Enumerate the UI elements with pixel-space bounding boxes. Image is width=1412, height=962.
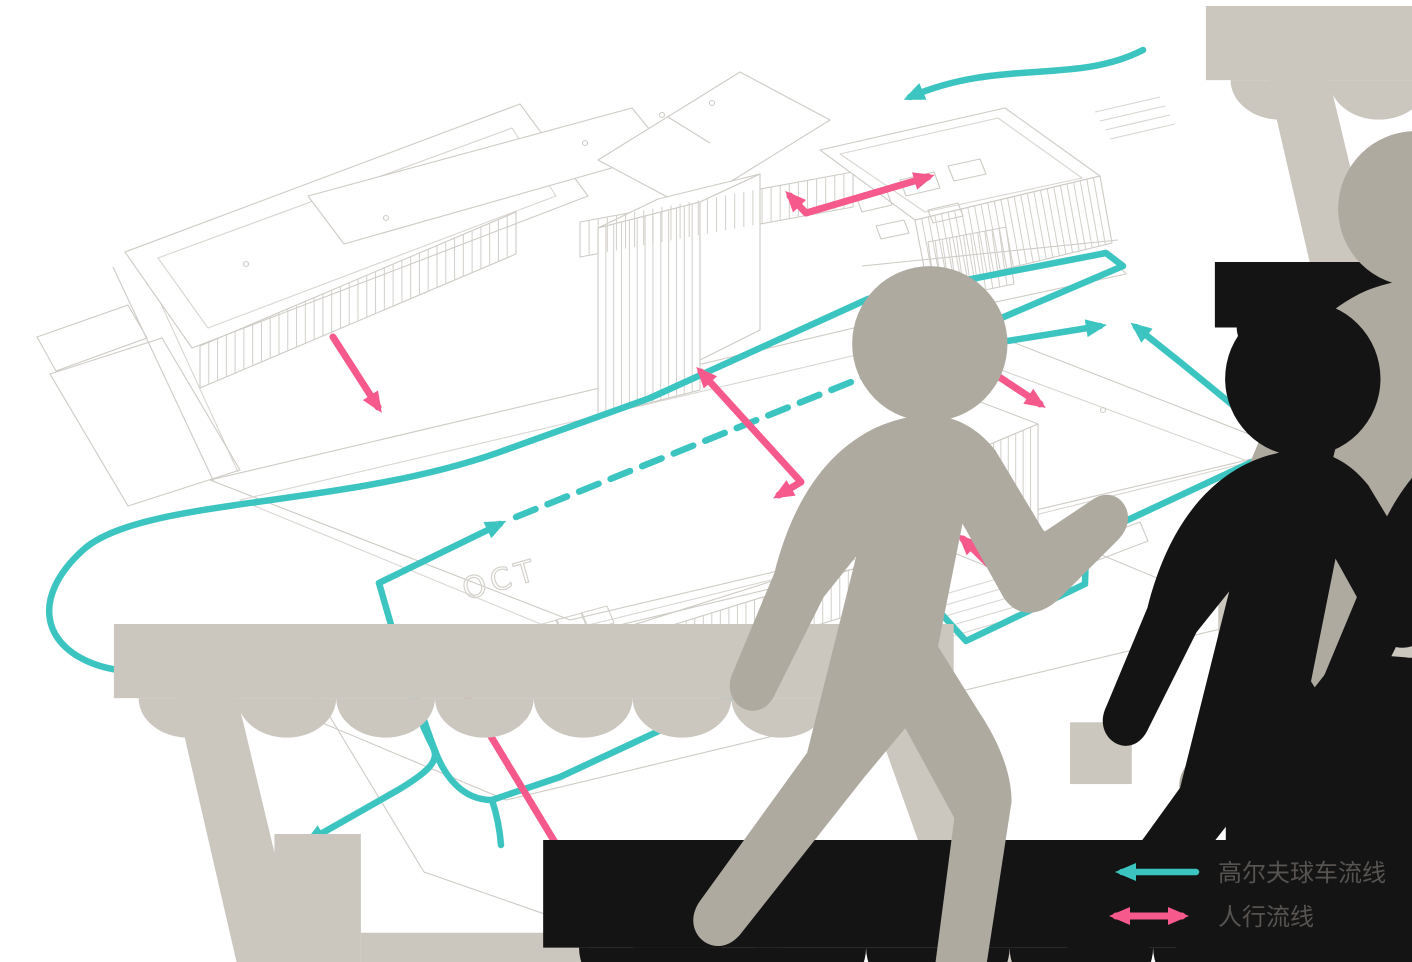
left-slab-1: [37, 305, 147, 371]
tower-center-side: [700, 174, 760, 360]
ground-logo-text: OCT: [459, 553, 544, 608]
ped-left-balcony-down: [333, 337, 378, 407]
circulation-diagram: OCT 高尔夫球车流线 人行流线: [0, 0, 1412, 962]
legend-golf-cart-label: 高尔夫球车流线: [1218, 859, 1386, 887]
cart-arrival-from-top-cart: [910, 50, 1143, 97]
deck-upper-inner: [240, 340, 1250, 632]
legend-pedestrian-label: 人行流线: [1218, 903, 1314, 931]
stairs-upper: [1095, 97, 1175, 139]
cart-stub-to-bottom-cart: [492, 800, 501, 845]
deck-upper: [210, 310, 1290, 620]
roof-top-right: [820, 108, 1100, 220]
roof-cutout-4: [876, 220, 909, 239]
